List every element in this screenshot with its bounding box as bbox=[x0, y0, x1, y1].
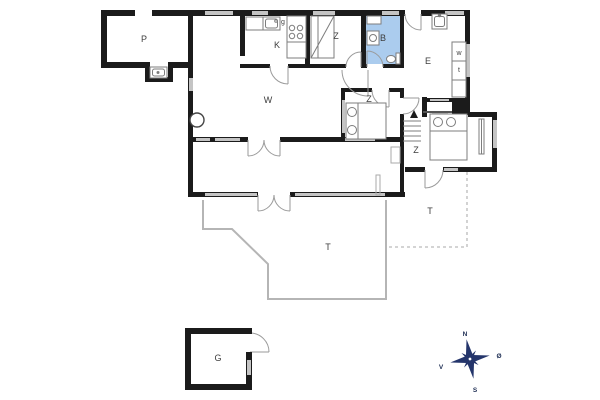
room-label-living-room: W bbox=[264, 95, 273, 105]
right-bedroom-closet bbox=[479, 119, 484, 154]
room-label-right-bedroom: Z bbox=[413, 145, 419, 155]
compass-south-label: S bbox=[473, 387, 478, 394]
label-dryer: t bbox=[458, 67, 460, 74]
bathroom-cabinet bbox=[367, 16, 381, 24]
furniture bbox=[150, 14, 484, 195]
entrance-door-arc bbox=[405, 14, 421, 30]
compass-west-label: V bbox=[439, 364, 444, 371]
room-label-kitchen: K bbox=[274, 40, 280, 50]
main-terrace-outline bbox=[203, 200, 386, 299]
floorplan-svg: P K Z B E W Z Z T T G g w t N Ø S V bbox=[0, 0, 600, 400]
terrace-double-door-left-arc bbox=[258, 195, 274, 211]
room-label-side-terrace: T bbox=[427, 206, 433, 216]
outbuilding-door-arc bbox=[250, 333, 269, 352]
room-label-outbuilding: G bbox=[214, 353, 221, 363]
windows bbox=[189, 11, 497, 196]
room-label-main-terrace: T bbox=[325, 242, 331, 252]
right-bedroom-terrace-door-arc bbox=[425, 170, 443, 188]
inner-double-door-left-arc bbox=[248, 140, 264, 156]
bunk-bed bbox=[311, 16, 334, 58]
room-label-middle-bedroom: Z bbox=[366, 94, 372, 104]
floorplan-canvas: P K Z B E W Z Z T T G g w t N Ø S V bbox=[0, 0, 600, 400]
chimney-block bbox=[452, 98, 470, 115]
terrace-double-door-right-arc bbox=[274, 195, 290, 211]
shelf bbox=[391, 147, 400, 163]
annex-sink bbox=[150, 67, 167, 78]
bunk-bedroom-door-arc bbox=[346, 52, 361, 67]
entry-cabinet bbox=[432, 14, 447, 29]
washbasin bbox=[367, 31, 379, 45]
middle-bedroom-bed bbox=[346, 103, 386, 139]
kitchen-door-arc bbox=[270, 66, 288, 84]
corridor-door-arc bbox=[342, 70, 368, 96]
room-label-bathroom: B bbox=[380, 33, 386, 43]
label-dishwasher: g bbox=[281, 19, 285, 26]
room-label-entrance: E bbox=[425, 56, 431, 66]
wood-stove bbox=[190, 113, 204, 127]
room-label-annex: P bbox=[141, 34, 147, 44]
compass-north-label: N bbox=[463, 331, 468, 338]
inner-double-door-right-arc bbox=[264, 140, 280, 156]
stairs bbox=[403, 110, 421, 141]
compass-rose: N Ø S V bbox=[439, 331, 502, 394]
compass-east-label: Ø bbox=[496, 353, 501, 360]
label-washing-machine: w bbox=[455, 50, 462, 57]
hall-door-arc bbox=[403, 98, 419, 114]
room-label-bunk-bedroom: Z bbox=[333, 31, 339, 41]
right-bedroom-bed bbox=[430, 114, 467, 160]
kitchen-sink bbox=[263, 17, 280, 30]
